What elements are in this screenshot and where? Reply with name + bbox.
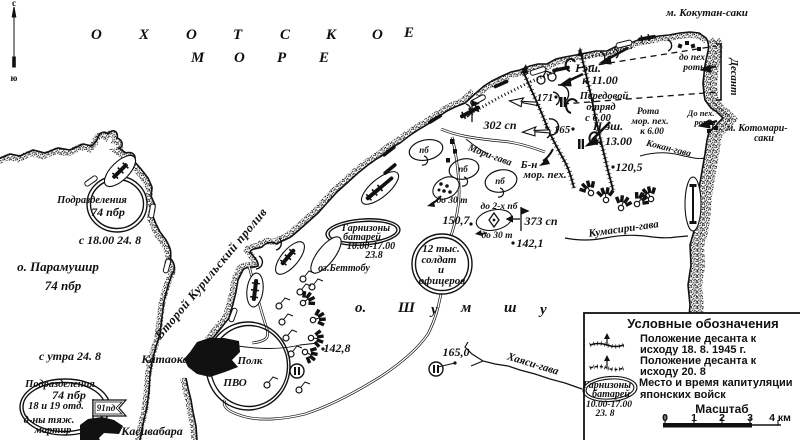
svg-text:Передовой: Передовой xyxy=(579,91,629,102)
svg-text:1: 1 xyxy=(691,412,697,424)
svg-text:ш: ш xyxy=(504,300,517,316)
svg-text:Полк: Полк xyxy=(236,355,262,367)
svg-text:мор. пех.: мор. пех. xyxy=(522,169,566,181)
svg-text:373 сп: 373 сп xyxy=(524,214,558,228)
svg-text:о. Парамушир: о. Парамушир xyxy=(17,259,99,274)
svg-text:165: 165 xyxy=(554,124,571,136)
svg-text:Т: Т xyxy=(233,27,243,43)
svg-text:Условные обозначения: Условные обозначения xyxy=(627,316,778,331)
svg-text:пб: пб xyxy=(419,145,429,155)
svg-text:с 18.00 24. 8: с 18.00 24. 8 xyxy=(79,233,141,247)
svg-text:Е: Е xyxy=(318,50,329,66)
svg-text:к 13.00: к 13.00 xyxy=(596,134,632,148)
svg-text:Место и время капитуляции: Место и время капитуляции xyxy=(639,377,793,389)
svg-text:Ш: Ш xyxy=(397,300,416,316)
svg-text:к 11.00: к 11.00 xyxy=(582,73,617,87)
svg-text:II эш.: II эш. xyxy=(592,119,623,133)
svg-text:роты: роты xyxy=(682,63,707,73)
svg-text:Касивабара: Касивабара xyxy=(120,424,182,438)
svg-text:Рота: Рота xyxy=(637,107,660,117)
svg-text:к 6.00: к 6.00 xyxy=(640,127,664,137)
svg-text:ю: ю xyxy=(11,73,18,83)
svg-text:М: М xyxy=(190,50,205,66)
svg-text:до 30 т: до 30 т xyxy=(436,195,467,206)
svg-text:у: у xyxy=(538,302,547,318)
svg-text:302 сп: 302 сп xyxy=(483,118,517,132)
svg-text:мортир: мортир xyxy=(34,425,72,436)
svg-text:23.8: 23.8 xyxy=(364,250,383,261)
svg-text:ПВО: ПВО xyxy=(222,377,246,389)
svg-text:у: у xyxy=(429,302,438,318)
svg-text:91пд: 91пд xyxy=(97,403,116,413)
svg-text:японских войск: японских войск xyxy=(640,389,726,401)
svg-text:до 30 т: до 30 т xyxy=(481,230,512,241)
svg-text:отряд: отряд xyxy=(586,102,615,113)
svg-text:саки: саки xyxy=(754,133,774,144)
svg-text:пб: пб xyxy=(495,176,505,186)
svg-text:О: О xyxy=(234,50,245,66)
svg-text:батарей: батарей xyxy=(592,389,630,400)
svg-text:3: 3 xyxy=(747,412,753,424)
svg-text:до 2-х пб: до 2-х пб xyxy=(481,201,519,212)
svg-text:о.: о. xyxy=(355,300,366,316)
svg-text:120,5: 120,5 xyxy=(616,160,643,174)
svg-text:165,0: 165,0 xyxy=(443,345,470,359)
svg-text:м: м xyxy=(460,300,471,316)
svg-text:оз.Беттобу: оз.Беттобу xyxy=(318,263,370,274)
svg-text:23. 8: 23. 8 xyxy=(595,409,615,419)
svg-text:С: С xyxy=(280,27,291,43)
svg-text:4 км: 4 км xyxy=(769,412,791,424)
svg-text:О: О xyxy=(372,27,383,43)
svg-text:Катаока: Катаока xyxy=(140,352,188,366)
svg-text:2: 2 xyxy=(719,412,725,424)
svg-text:до пех: до пех xyxy=(679,52,705,63)
svg-text:171: 171 xyxy=(537,92,554,104)
svg-text:74 пбр: 74 пбр xyxy=(45,278,82,293)
svg-text:с: с xyxy=(12,0,16,8)
svg-text:Х: Х xyxy=(138,27,150,43)
svg-text:с утра 24. 8: с утра 24. 8 xyxy=(39,349,101,363)
svg-text:роты: роты xyxy=(693,117,715,127)
svg-text:74 пбр: 74 пбр xyxy=(91,205,125,219)
svg-text:м. Кокутан-саки: м. Кокутан-саки xyxy=(665,7,748,19)
svg-text:0: 0 xyxy=(662,412,668,424)
svg-text:74 пбр: 74 пбр xyxy=(52,388,86,402)
svg-text:офицеров: офицеров xyxy=(419,275,465,287)
svg-text:Е: Е xyxy=(403,25,414,41)
svg-text:О: О xyxy=(91,27,102,43)
svg-text:О: О xyxy=(186,27,197,43)
svg-text:142,8: 142,8 xyxy=(324,341,351,355)
svg-text:150,7: 150,7 xyxy=(443,213,471,227)
svg-text:Десант: Десант xyxy=(728,57,740,95)
svg-text:К: К xyxy=(325,27,337,43)
svg-text:18 и 19 отд.: 18 и 19 отд. xyxy=(28,401,84,412)
svg-text:мор. пех.: мор. пех. xyxy=(630,117,668,127)
svg-text:Р: Р xyxy=(277,50,287,66)
svg-text:142,1: 142,1 xyxy=(517,236,544,250)
svg-text:пб: пб xyxy=(458,164,468,174)
